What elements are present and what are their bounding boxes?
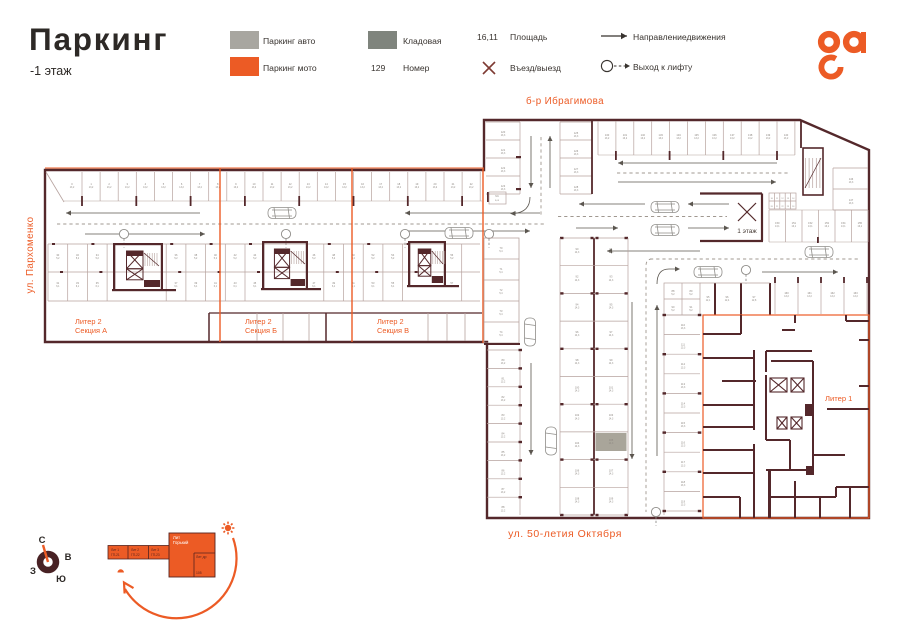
svg-text:13,2: 13,2 — [784, 138, 789, 140]
svg-text:125: 125 — [574, 131, 579, 135]
svg-text:13,2: 13,2 — [784, 296, 789, 298]
svg-text:Выход к лифту: Выход к лифту — [633, 62, 693, 72]
svg-text:13,3: 13,3 — [849, 203, 854, 205]
svg-text:102: 102 — [575, 413, 580, 417]
svg-text:13,2: 13,2 — [125, 187, 130, 189]
svg-text:132: 132 — [641, 133, 646, 137]
svg-text:13,1: 13,1 — [792, 226, 797, 228]
svg-text:ГП-22: ГП-22 — [131, 553, 140, 557]
svg-text:13,2: 13,2 — [324, 187, 329, 189]
svg-text:13,2: 13,2 — [107, 187, 112, 189]
svg-text:13,2: 13,2 — [501, 400, 506, 402]
svg-text:13,2: 13,2 — [451, 187, 456, 189]
svg-text:161: 161 — [807, 291, 812, 295]
svg-text:13,3: 13,3 — [681, 328, 686, 330]
svg-text:106: 106 — [575, 469, 580, 473]
svg-text:13,2: 13,2 — [676, 138, 681, 140]
svg-text:100: 100 — [575, 386, 580, 390]
svg-text:13,2: 13,2 — [342, 187, 347, 189]
svg-text:ГП-21: ГП-21 — [111, 553, 120, 557]
svg-text:1 этаж: 1 этаж — [737, 228, 757, 235]
svg-text:13,3: 13,3 — [681, 446, 686, 448]
svg-text:13,2: 13,2 — [658, 138, 663, 140]
svg-text:109: 109 — [609, 496, 614, 500]
svg-text:14,3: 14,3 — [575, 363, 580, 365]
svg-text:б-р Ибрагимова: б-р Ибрагимова — [526, 96, 604, 107]
svg-text:119: 119 — [681, 499, 686, 503]
svg-text:14,3: 14,3 — [575, 335, 580, 337]
svg-text:123: 123 — [501, 184, 506, 188]
svg-text:Литер 2: Литер 2 — [75, 317, 102, 326]
svg-text:118: 118 — [681, 480, 686, 484]
svg-text:13,2: 13,2 — [433, 187, 438, 189]
svg-text:14,3: 14,3 — [609, 418, 614, 420]
svg-text:14,3: 14,3 — [609, 501, 614, 503]
svg-text:126: 126 — [574, 149, 579, 153]
svg-text:146: 146 — [849, 177, 854, 181]
svg-text:155: 155 — [858, 221, 863, 225]
svg-text:Паркинг мото: Паркинг мото — [263, 63, 317, 73]
svg-text:Литер 1: Литер 1 — [825, 394, 852, 403]
svg-text:104: 104 — [575, 441, 580, 445]
svg-text:101: 101 — [609, 386, 614, 390]
svg-text:13,2: 13,2 — [623, 138, 628, 140]
svg-text:14,3: 14,3 — [575, 280, 580, 282]
svg-text:14,3: 14,3 — [609, 308, 614, 310]
svg-text:Лит 3: Лит 3 — [151, 548, 159, 552]
svg-text:Номер: Номер — [403, 63, 430, 73]
svg-text:13,3: 13,3 — [681, 465, 686, 467]
svg-text:13,2: 13,2 — [288, 187, 293, 189]
svg-text:110: 110 — [681, 323, 686, 327]
svg-text:135: 135 — [694, 133, 699, 137]
svg-text:13,2: 13,2 — [378, 187, 383, 189]
svg-text:13,2: 13,2 — [501, 382, 506, 384]
svg-text:108: 108 — [575, 496, 580, 500]
svg-text:14,3: 14,3 — [609, 335, 614, 337]
svg-text:13,2: 13,2 — [501, 492, 506, 494]
svg-text:Литер 2: Литер 2 — [377, 317, 404, 326]
svg-text:13,2: 13,2 — [70, 187, 75, 189]
svg-text:112: 112 — [681, 362, 686, 366]
svg-text:12,4: 12,4 — [725, 300, 730, 302]
svg-text:131: 131 — [623, 133, 628, 137]
svg-text:З: З — [30, 566, 36, 577]
svg-text:13,2: 13,2 — [766, 138, 771, 140]
svg-text:14,3: 14,3 — [575, 308, 580, 310]
svg-text:13,2: 13,2 — [853, 296, 858, 298]
svg-text:Лит 1: Лит 1 — [111, 548, 119, 552]
svg-text:Ю: Ю — [56, 574, 66, 585]
svg-text:137: 137 — [730, 133, 735, 137]
svg-text:130: 130 — [605, 133, 610, 137]
svg-text:ГП-23: ГП-23 — [151, 553, 160, 557]
svg-text:14,3: 14,3 — [575, 252, 580, 254]
svg-text:115: 115 — [681, 421, 686, 425]
svg-text:14,3: 14,3 — [575, 391, 580, 393]
svg-text:133: 133 — [659, 133, 664, 137]
svg-text:13,3: 13,3 — [501, 153, 506, 155]
svg-text:Секция В: Секция В — [377, 326, 409, 335]
svg-text:13,2: 13,2 — [161, 187, 166, 189]
svg-text:13,3: 13,3 — [681, 407, 686, 409]
svg-text:13,2: 13,2 — [179, 187, 184, 189]
svg-text:129: 129 — [371, 63, 386, 73]
svg-text:13,2: 13,2 — [252, 187, 257, 189]
svg-text:128: 128 — [574, 185, 579, 189]
svg-text:152: 152 — [808, 221, 813, 225]
svg-text:103: 103 — [609, 413, 614, 417]
svg-text:105: 105 — [609, 438, 614, 442]
svg-text:14,3: 14,3 — [609, 363, 614, 365]
svg-text:154: 154 — [841, 221, 846, 225]
svg-text:14,3: 14,3 — [609, 474, 614, 476]
svg-text:13,3: 13,3 — [574, 136, 579, 138]
svg-text:13,2: 13,2 — [197, 187, 202, 189]
svg-text:13,2: 13,2 — [501, 510, 506, 512]
svg-text:13,3: 13,3 — [681, 485, 686, 487]
svg-text:105: 105 — [196, 571, 202, 575]
svg-text:151: 151 — [792, 221, 797, 225]
svg-text:127: 127 — [574, 167, 579, 171]
svg-text:117: 117 — [681, 460, 686, 464]
svg-text:13,3: 13,3 — [574, 172, 579, 174]
svg-text:16,11: 16,11 — [477, 32, 498, 42]
svg-text:13,2: 13,2 — [641, 138, 646, 140]
svg-text:120: 120 — [501, 130, 506, 134]
svg-text:13,2: 13,2 — [501, 363, 506, 365]
svg-text:163: 163 — [853, 291, 858, 295]
svg-text:107: 107 — [609, 469, 614, 473]
svg-text:Секция Б: Секция Б — [245, 326, 277, 335]
svg-text:13,2: 13,2 — [501, 418, 506, 420]
svg-text:13,2: 13,2 — [415, 187, 420, 189]
svg-text:13,2: 13,2 — [748, 138, 753, 140]
svg-text:14,3: 14,3 — [609, 443, 614, 445]
svg-text:-1 этаж: -1 этаж — [30, 64, 72, 78]
svg-text:134: 134 — [676, 133, 681, 137]
svg-text:ул. 50-летия Октября: ул. 50-летия Октября — [508, 528, 622, 540]
svg-text:Горький: Горький — [173, 540, 189, 545]
svg-text:13,2: 13,2 — [730, 138, 735, 140]
svg-text:116: 116 — [681, 441, 686, 445]
svg-text:13,2: 13,2 — [143, 187, 148, 189]
svg-text:113: 113 — [681, 382, 686, 386]
svg-text:13,3: 13,3 — [501, 189, 506, 191]
svg-text:114: 114 — [681, 401, 686, 405]
svg-text:14,3: 14,3 — [575, 501, 580, 503]
svg-text:Площадь: Площадь — [510, 32, 548, 42]
svg-text:13,2: 13,2 — [605, 138, 610, 140]
svg-text:13,2: 13,2 — [360, 187, 365, 189]
svg-text:13,2: 13,2 — [694, 138, 699, 140]
svg-text:Кладовая: Кладовая — [403, 36, 442, 46]
svg-text:13,3: 13,3 — [681, 387, 686, 389]
svg-text:Паркинг: Паркинг — [29, 21, 168, 57]
svg-text:13,2: 13,2 — [469, 187, 474, 189]
svg-text:13,2: 13,2 — [397, 187, 402, 189]
svg-text:13,1: 13,1 — [808, 226, 813, 228]
svg-text:13,3: 13,3 — [681, 505, 686, 507]
svg-text:Секция А: Секция А — [75, 326, 107, 335]
svg-text:136: 136 — [712, 133, 717, 137]
svg-text:160: 160 — [784, 291, 789, 295]
svg-text:13,2: 13,2 — [306, 187, 311, 189]
svg-text:13,1: 13,1 — [825, 226, 830, 228]
svg-text:14,3: 14,3 — [575, 446, 580, 448]
svg-text:13,3: 13,3 — [681, 348, 686, 350]
svg-text:13,3: 13,3 — [574, 154, 579, 156]
svg-text:Лит др: Лит др — [196, 555, 207, 559]
svg-text:13,2: 13,2 — [270, 187, 275, 189]
svg-text:13,3: 13,3 — [501, 135, 506, 137]
svg-text:12,1: 12,1 — [706, 300, 711, 302]
svg-text:14,3: 14,3 — [609, 280, 614, 282]
svg-text:14,3: 14,3 — [609, 252, 614, 254]
svg-text:150: 150 — [775, 221, 780, 225]
svg-text:13,2: 13,2 — [501, 474, 506, 476]
svg-text:Паркинг авто: Паркинг авто — [263, 36, 316, 46]
svg-text:В: В — [65, 552, 72, 563]
svg-text:140: 140 — [784, 133, 789, 137]
svg-text:Направлениедвижения: Направлениедвижения — [633, 32, 726, 42]
svg-text:Литер 2: Литер 2 — [245, 317, 272, 326]
svg-text:13,3: 13,3 — [574, 190, 579, 192]
svg-text:14,3: 14,3 — [609, 391, 614, 393]
svg-text:13,1: 13,1 — [775, 226, 780, 228]
svg-text:12,8: 12,8 — [752, 300, 757, 302]
svg-text:138: 138 — [748, 133, 753, 137]
svg-text:13,3: 13,3 — [849, 182, 854, 184]
svg-text:ул. Пархоменко: ул. Пархоменко — [25, 216, 36, 293]
svg-text:13,3: 13,3 — [501, 171, 506, 173]
svg-text:153: 153 — [825, 221, 830, 225]
svg-text:13,2: 13,2 — [501, 455, 506, 457]
svg-text:14,3: 14,3 — [575, 474, 580, 476]
svg-text:14,3: 14,3 — [575, 418, 580, 420]
svg-text:13,2: 13,2 — [501, 437, 506, 439]
svg-text:13,2: 13,2 — [830, 296, 835, 298]
svg-text:Лит 2: Лит 2 — [131, 548, 139, 552]
svg-text:13,2: 13,2 — [234, 187, 239, 189]
svg-text:147: 147 — [849, 198, 854, 202]
svg-text:111: 111 — [681, 343, 685, 347]
svg-text:13,2: 13,2 — [807, 296, 812, 298]
svg-text:139: 139 — [766, 133, 771, 137]
svg-text:Въезд/выезд: Въезд/выезд — [510, 63, 561, 73]
svg-text:162: 162 — [830, 291, 835, 295]
svg-text:122: 122 — [501, 166, 506, 170]
svg-text:13,3: 13,3 — [681, 367, 686, 369]
svg-text:121: 121 — [501, 148, 506, 152]
svg-text:13,2: 13,2 — [712, 138, 717, 140]
svg-text:13,1: 13,1 — [858, 226, 863, 228]
svg-text:13,3: 13,3 — [681, 426, 686, 428]
svg-text:13,2: 13,2 — [89, 187, 94, 189]
svg-text:С: С — [39, 535, 46, 546]
svg-text:13,1: 13,1 — [841, 226, 846, 228]
